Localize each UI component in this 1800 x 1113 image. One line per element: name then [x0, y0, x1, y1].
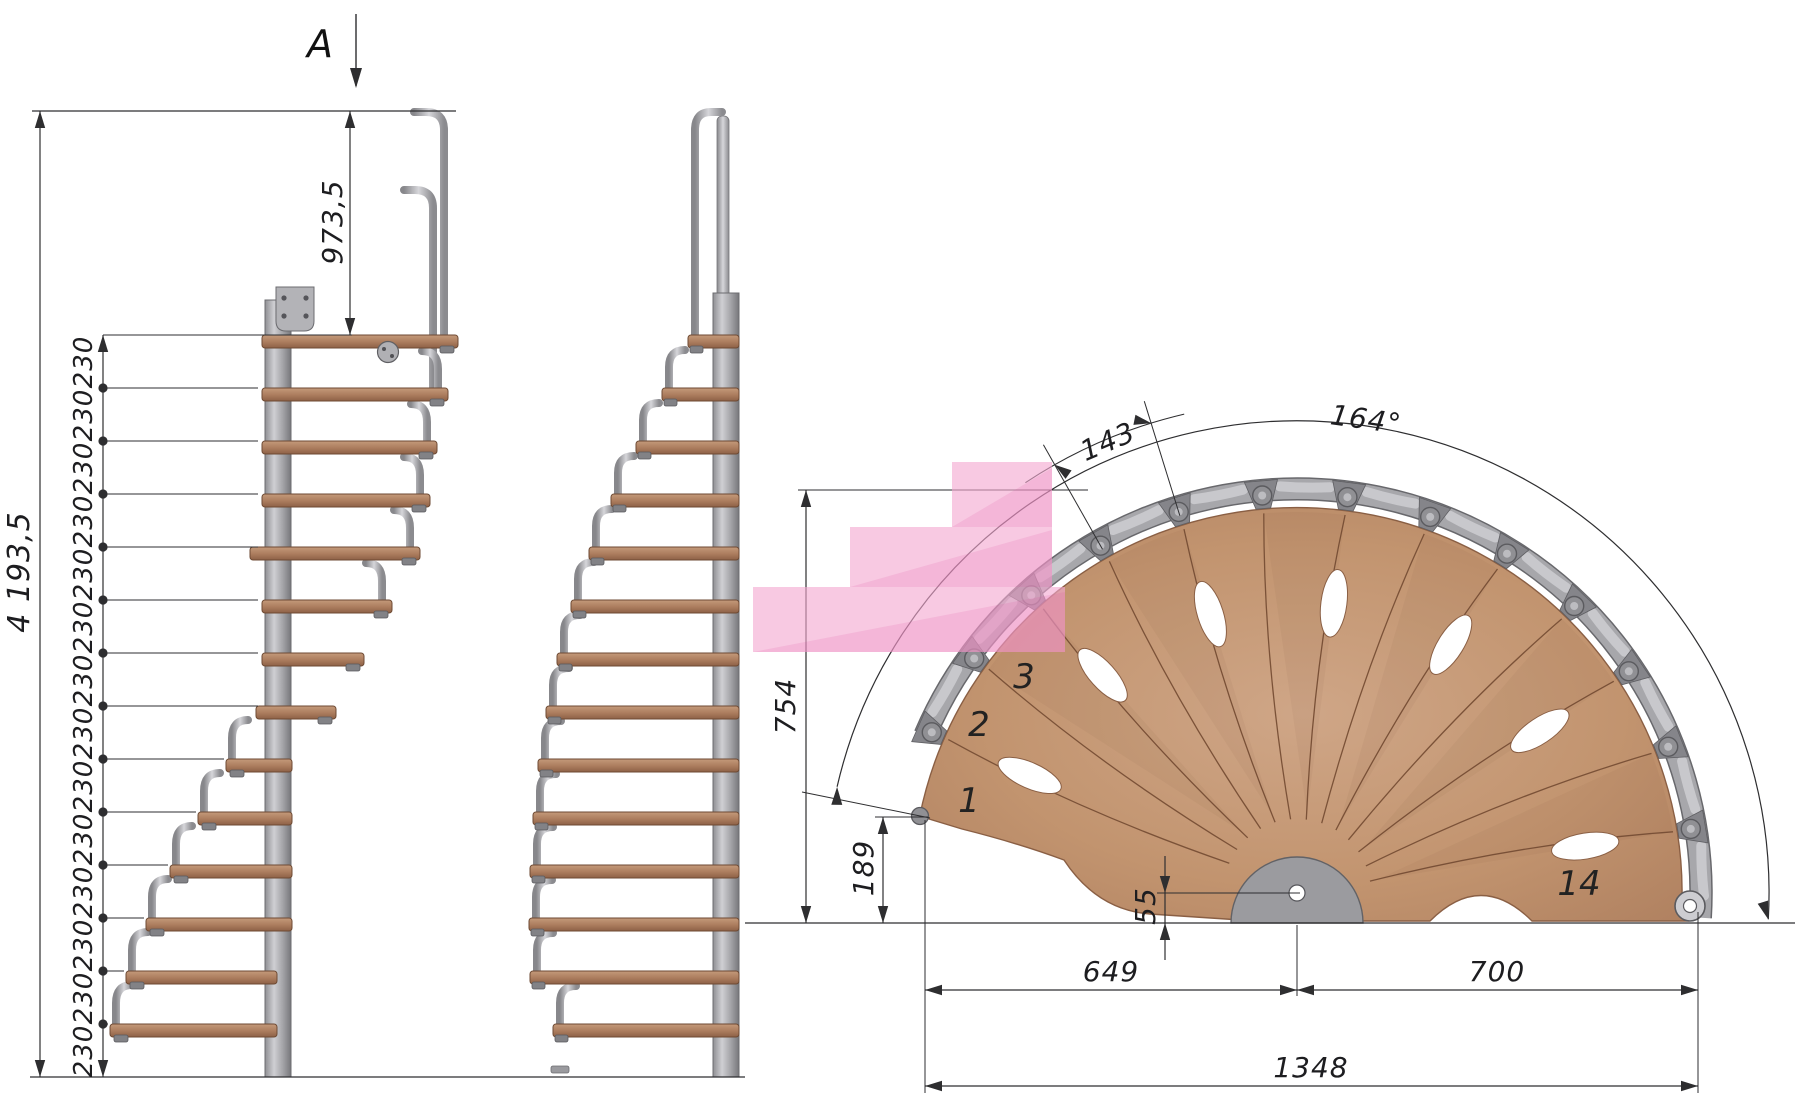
dim-riser-230: 230 — [71, 706, 97, 759]
dim-riser-230: 230 — [71, 441, 97, 494]
left-elevation-view — [110, 94, 458, 1077]
dim-run-left: 649 — [1083, 958, 1139, 986]
side-elevation-view — [529, 112, 739, 1077]
dim-riser-230: 230 — [71, 335, 97, 388]
dim-riser-230: 230 — [71, 494, 97, 547]
dim-first-tread-rise: 189 — [850, 840, 878, 896]
dim-riser-230: 230 — [71, 600, 97, 653]
dim-left-height: 754 — [772, 678, 800, 734]
dim-riser-230: 230 — [71, 865, 97, 918]
drawing-canvas — [0, 0, 1800, 1113]
tread-number-14: 14 — [1557, 867, 1600, 901]
section-marker-a: A — [307, 25, 333, 63]
dim-run-total: 1348 — [1273, 1054, 1348, 1082]
dim-riser-230: 230 — [71, 1024, 97, 1077]
dim-top-rise: 973,5 — [319, 179, 347, 264]
dim-riser-230: 230 — [71, 971, 97, 1024]
dim-riser-230: 230 — [71, 918, 97, 971]
tread-number-2: 2 — [968, 708, 990, 742]
dim-riser-230: 230 — [71, 653, 97, 706]
dim-run-right: 700 — [1469, 958, 1525, 986]
technical-drawing: A 4 193,5 973,5 230230230230230230230230… — [0, 0, 1800, 1113]
dim-riser-230: 230 — [71, 388, 97, 441]
dim-base-offset: 55 — [1132, 887, 1160, 925]
tread-number-1: 1 — [958, 784, 980, 818]
dim-total-height: 4 193,5 — [5, 511, 35, 633]
dim-riser-230: 230 — [71, 759, 97, 812]
dim-riser-230: 230 — [71, 812, 97, 865]
dim-riser-230: 230 — [71, 547, 97, 600]
tread-number-3: 3 — [1013, 660, 1035, 694]
